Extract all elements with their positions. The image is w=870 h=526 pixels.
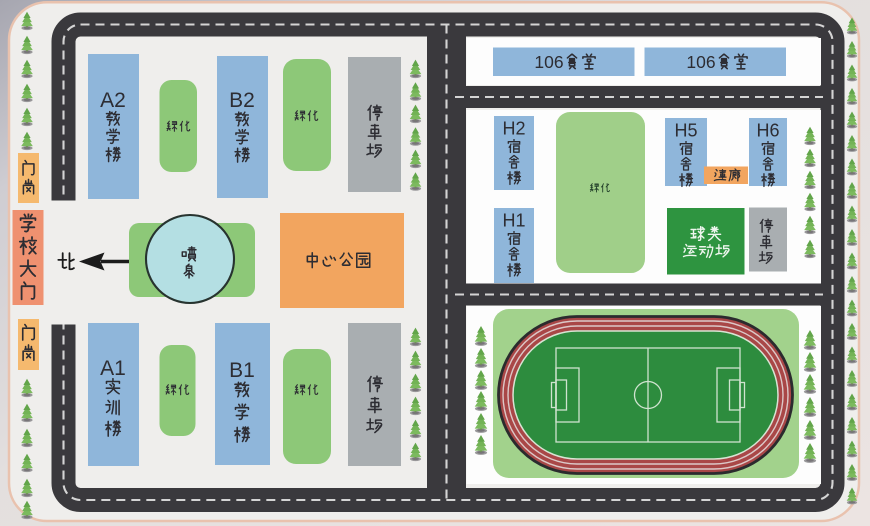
svg-text:106: 106 — [686, 52, 715, 72]
svg-text:H5: H5 — [674, 121, 697, 141]
svg-text:B2: B2 — [229, 89, 255, 112]
svg-text:H2: H2 — [502, 119, 525, 139]
svg-text:H1: H1 — [502, 211, 525, 231]
svg-text:106: 106 — [534, 52, 563, 72]
svg-text:H6: H6 — [756, 121, 779, 141]
svg-text:A2: A2 — [100, 89, 126, 112]
svg-text:A1: A1 — [100, 357, 126, 380]
svg-text:B1: B1 — [229, 359, 255, 382]
